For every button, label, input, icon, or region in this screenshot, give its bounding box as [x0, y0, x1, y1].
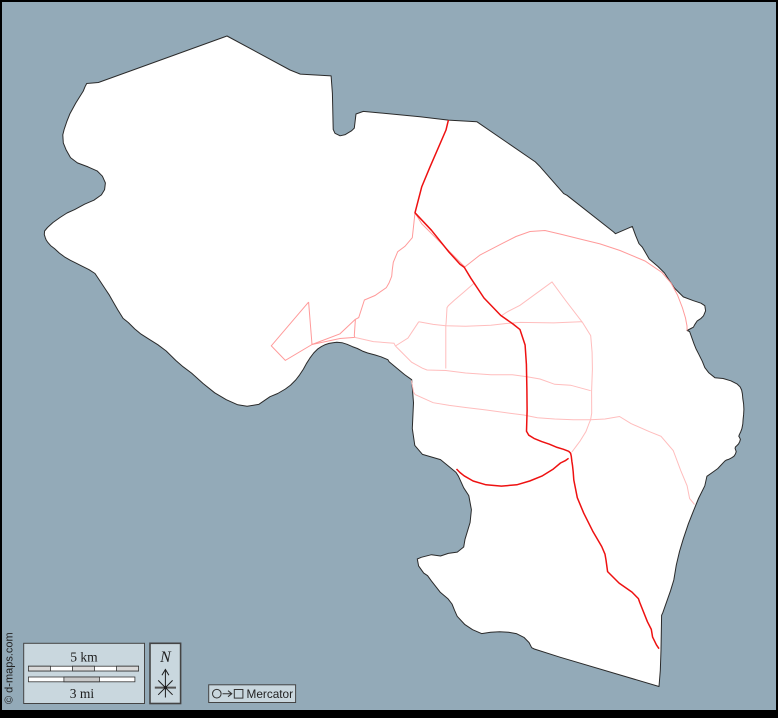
- svg-text:Mercator: Mercator: [247, 687, 294, 701]
- svg-text:© d-maps.com: © d-maps.com: [4, 632, 16, 704]
- svg-text:5 km: 5 km: [70, 650, 98, 665]
- svg-text:3 mi: 3 mi: [70, 686, 95, 701]
- svg-text:N: N: [159, 649, 172, 666]
